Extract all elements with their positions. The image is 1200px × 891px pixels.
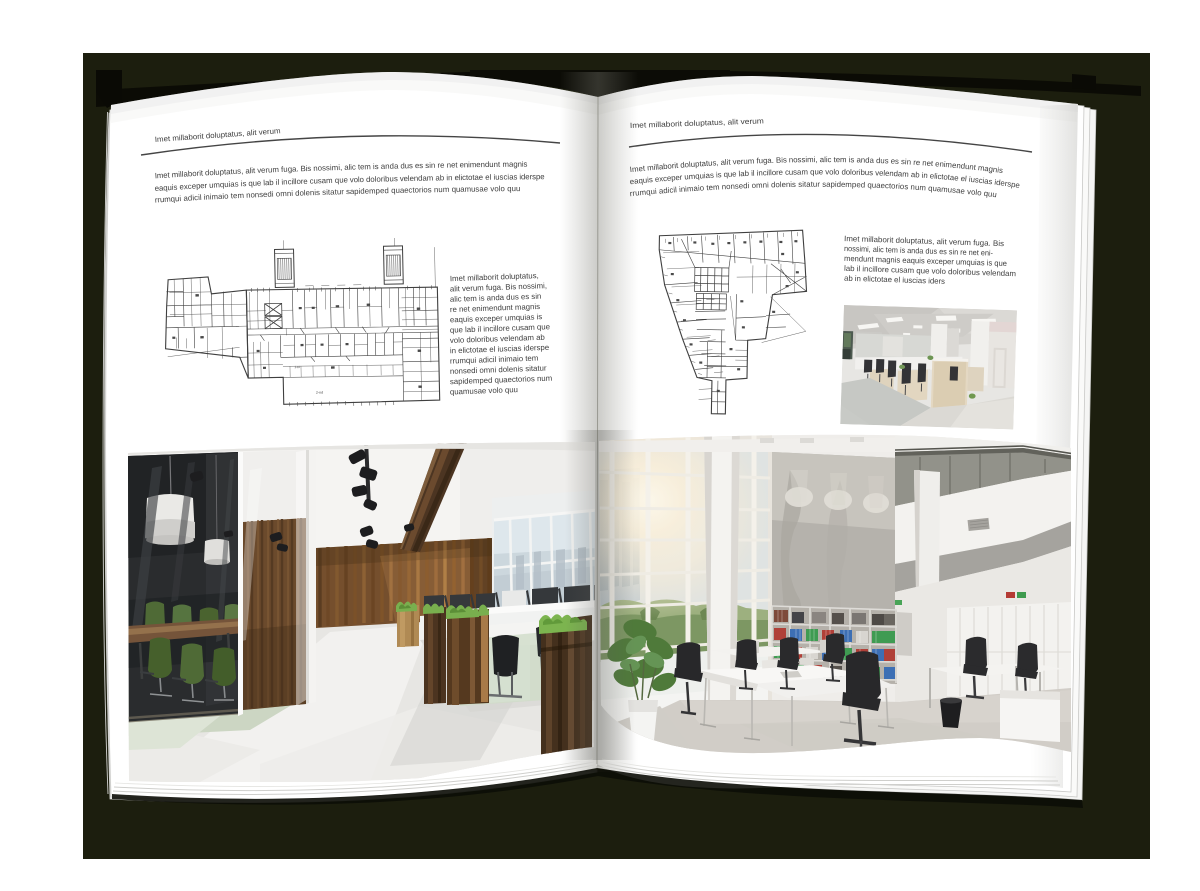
svg-text:1-st: 1-st — [294, 365, 300, 369]
svg-text:2-nd: 2-nd — [316, 391, 323, 395]
